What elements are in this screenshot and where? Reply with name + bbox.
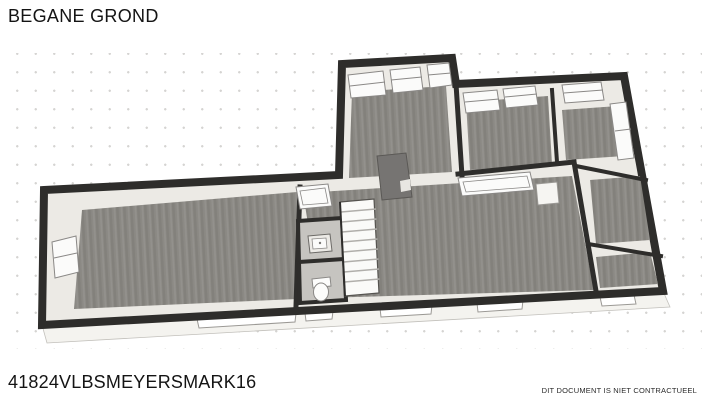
window [503,86,538,108]
window [463,90,500,113]
wc-rooms [298,218,346,303]
sink-fixture [308,234,332,253]
room-right-mid-floor [590,176,650,244]
door-leaf [536,182,559,205]
window [52,236,79,278]
disclaimer-text: DIT DOCUMENT IS NIET CONTRACTUEEL [542,386,697,395]
page-title: BEGANE GROND [8,6,159,27]
room-right-bottom-floor [596,252,658,288]
staircase [340,199,380,296]
window [562,82,604,103]
floorplan-page: BEGANE GROND 41824VLBSMEYERSMARK16 DIT D… [0,0,702,402]
reference-code: 41824VLBSMEYERSMARK16 [8,372,256,393]
chimney-block [377,153,412,200]
floorplan-render [0,0,702,402]
window [296,184,332,209]
window [427,63,452,88]
floorplan [42,58,670,343]
window [390,67,423,93]
room-left-wing-floor [74,192,297,309]
window [348,71,386,98]
